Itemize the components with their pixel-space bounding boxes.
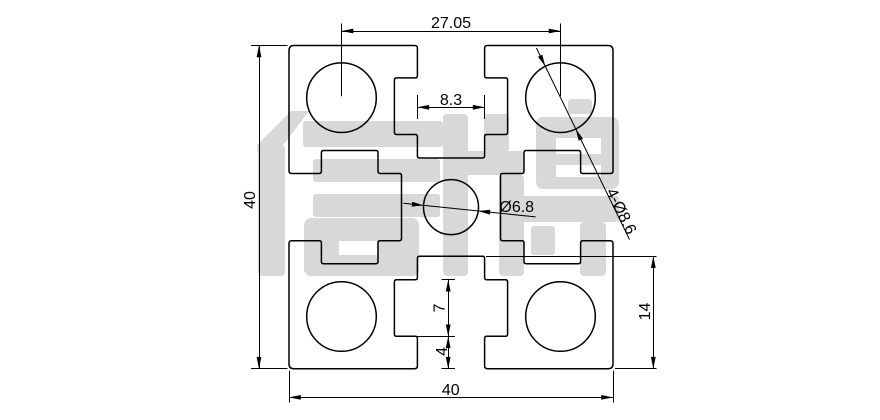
svg-text:7: 7 bbox=[432, 303, 449, 312]
svg-text:27.05: 27.05 bbox=[431, 15, 471, 32]
svg-text:40: 40 bbox=[242, 191, 259, 209]
svg-text:4: 4 bbox=[434, 347, 451, 356]
svg-text:8.3: 8.3 bbox=[440, 92, 462, 109]
svg-text:40: 40 bbox=[442, 382, 460, 399]
svg-text:14: 14 bbox=[637, 303, 654, 321]
svg-text:Ø6.8: Ø6.8 bbox=[499, 199, 534, 216]
